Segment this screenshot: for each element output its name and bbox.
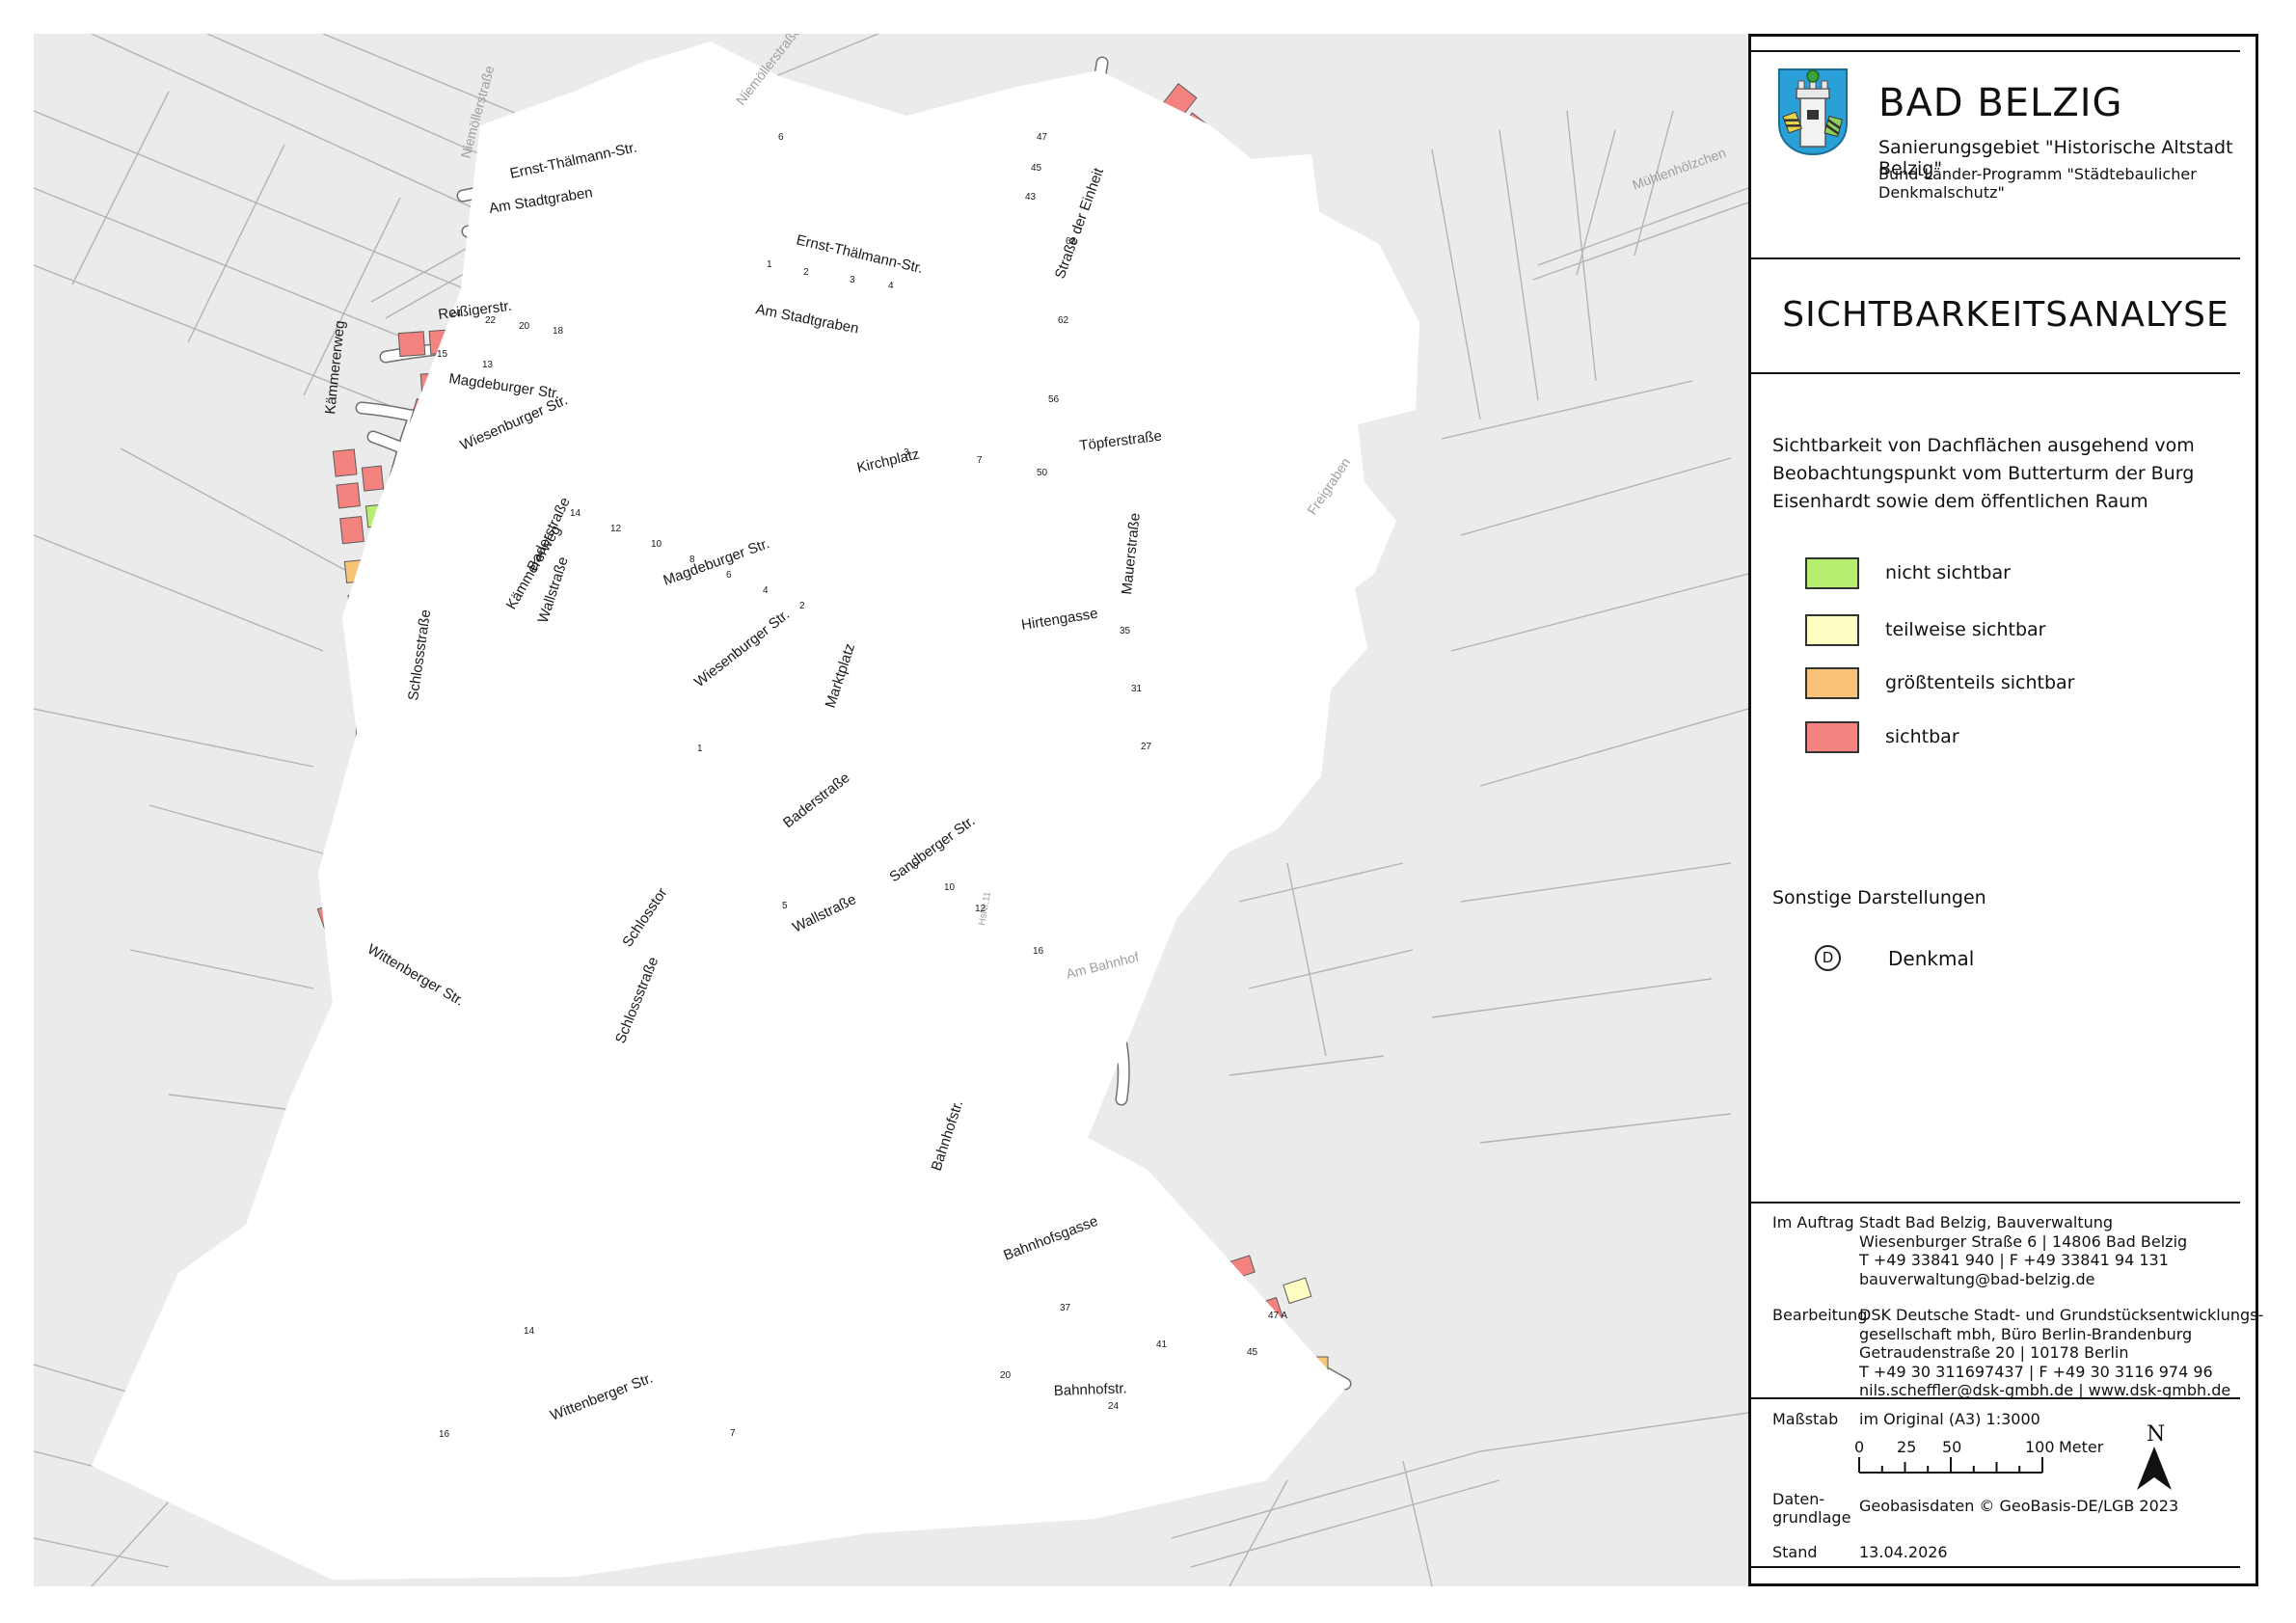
scale-unit: Meter bbox=[2059, 1438, 2104, 1456]
house-number: 41 bbox=[1156, 1339, 1168, 1350]
denkmal-label: Denkmal bbox=[1888, 947, 1974, 970]
house-number: 4 bbox=[763, 585, 769, 596]
house-number: 2 bbox=[799, 601, 805, 611]
legend-swatch-groesstenteils-sichtbar bbox=[1805, 667, 1859, 699]
page-title: SICHTBARKEITSANALYSE bbox=[1750, 295, 2261, 335]
house-number: 24 bbox=[450, 309, 462, 319]
scale-tick-25: 25 bbox=[1897, 1438, 1916, 1456]
house-number: 1 bbox=[697, 744, 703, 754]
house-number: 22 bbox=[485, 315, 497, 326]
subtitle-programm: Bund-Länder-Programm "Städtebaulicher De… bbox=[1878, 165, 2296, 202]
scale-bar-ticks bbox=[1859, 1457, 2042, 1473]
house-number: 12 bbox=[975, 904, 986, 914]
basis-value: Geobasisdaten © GeoBasis-DE/LGB 2023 bbox=[1859, 1497, 2178, 1516]
house-number: 18 bbox=[553, 326, 564, 337]
stand-label: Stand bbox=[1772, 1543, 1818, 1561]
house-number: 7 bbox=[730, 1428, 736, 1439]
house-number: 20 bbox=[1000, 1370, 1012, 1381]
house-number: 6 bbox=[726, 570, 732, 581]
other-representations-heading: Sonstige Darstellungen bbox=[1772, 887, 1986, 908]
plan-sheet: Niemöllerstraße Niemöllerstraße Ernst-Th… bbox=[0, 0, 2296, 1623]
house-number: 16 bbox=[1033, 946, 1044, 957]
house-number: 50 bbox=[1037, 468, 1048, 478]
coat-of-arms bbox=[1777, 68, 1849, 156]
house-number: 37 bbox=[1060, 1303, 1071, 1313]
legend-swatch-nicht-sichtbar bbox=[1805, 557, 1859, 589]
north-letter: N bbox=[2147, 1422, 2165, 1447]
credit-label-im-auftrag: Im Auftrag bbox=[1772, 1213, 1854, 1231]
house-number: 47 bbox=[1037, 132, 1048, 143]
org-title: BAD BELZIG bbox=[1878, 81, 2123, 125]
basis-label: Daten- grundlage bbox=[1772, 1490, 1850, 1527]
house-number: 4 bbox=[888, 281, 894, 291]
panel-divider bbox=[1748, 34, 1751, 1586]
house-number: 62 bbox=[1058, 315, 1069, 326]
street-label: Bahnhofstr. bbox=[1054, 1380, 1127, 1399]
house-number: 20 bbox=[519, 321, 530, 332]
legend-label: teilweise sichtbar bbox=[1885, 619, 2045, 640]
scale-tick-50: 50 bbox=[1942, 1438, 1961, 1456]
house-number: 24 bbox=[1108, 1401, 1120, 1412]
house-number: 45 bbox=[1247, 1347, 1258, 1358]
north-arrow-icon bbox=[2137, 1447, 2172, 1490]
house-number: 2 bbox=[803, 267, 809, 278]
legend-swatch-sichtbar bbox=[1805, 721, 1859, 753]
house-number: 3 bbox=[904, 447, 909, 458]
analysis-description: Sichtbarkeit von Dachflächen ausgehend v… bbox=[1772, 432, 2228, 516]
panel-rule bbox=[1751, 257, 2240, 259]
house-number: 45 bbox=[1031, 163, 1042, 174]
house-number: 7 bbox=[977, 455, 983, 466]
house-number: 8 bbox=[689, 555, 695, 565]
house-number: 12 bbox=[610, 524, 622, 534]
credit-label-bearbeitung: Bearbeitung bbox=[1772, 1306, 1867, 1324]
credit-value-bearbeitung: DSK Deutsche Stadt- und Grundstücksentwi… bbox=[1859, 1306, 2263, 1400]
house-number: 6 bbox=[778, 132, 784, 143]
stand-value: 13.04.2026 bbox=[1859, 1543, 1948, 1562]
house-number: 56 bbox=[1048, 394, 1060, 405]
house-number: 1 bbox=[767, 259, 772, 270]
house-number: 31 bbox=[1131, 684, 1143, 694]
panel-rule bbox=[1751, 1202, 2240, 1204]
panel-rule bbox=[1751, 50, 2240, 52]
house-number: 16 bbox=[439, 1429, 450, 1440]
house-number: 14 bbox=[570, 508, 581, 519]
house-number: 15 bbox=[437, 349, 448, 360]
legend-label: sichtbar bbox=[1885, 726, 1959, 747]
panel-rule bbox=[1751, 372, 2240, 374]
house-number: 10 bbox=[944, 882, 956, 893]
city-map: Niemöllerstraße Niemöllerstraße Ernst-Th… bbox=[34, 34, 1748, 1586]
legend-label: größtenteils sichtbar bbox=[1885, 672, 2075, 693]
scale-bar: 0 25 50 100 Meter N bbox=[1750, 1398, 2261, 1567]
house-number: 35 bbox=[1120, 626, 1131, 636]
house-number: 8 bbox=[913, 861, 919, 872]
legend-swatch-teilweise-sichtbar bbox=[1805, 614, 1859, 646]
house-number: 68 bbox=[1066, 236, 1077, 247]
house-number: 10 bbox=[651, 539, 662, 550]
denkmal-icon: D bbox=[1815, 945, 1841, 971]
scale-tick-0: 0 bbox=[1854, 1438, 1864, 1456]
house-number: 14 bbox=[524, 1326, 535, 1337]
house-number: 5 bbox=[782, 901, 788, 911]
house-number: 13 bbox=[482, 360, 494, 370]
credit-value-im-auftrag: Stadt Bad Belzig, Bauverwaltung Wiesenbu… bbox=[1859, 1213, 2187, 1288]
legend-label: nicht sichtbar bbox=[1885, 562, 2011, 583]
house-number: 27 bbox=[1141, 742, 1152, 752]
house-number: 43 bbox=[1025, 192, 1037, 203]
house-number: 47 A bbox=[1268, 1311, 1287, 1321]
scale-tick-100: 100 bbox=[2025, 1438, 2055, 1456]
house-number: 3 bbox=[850, 275, 855, 285]
